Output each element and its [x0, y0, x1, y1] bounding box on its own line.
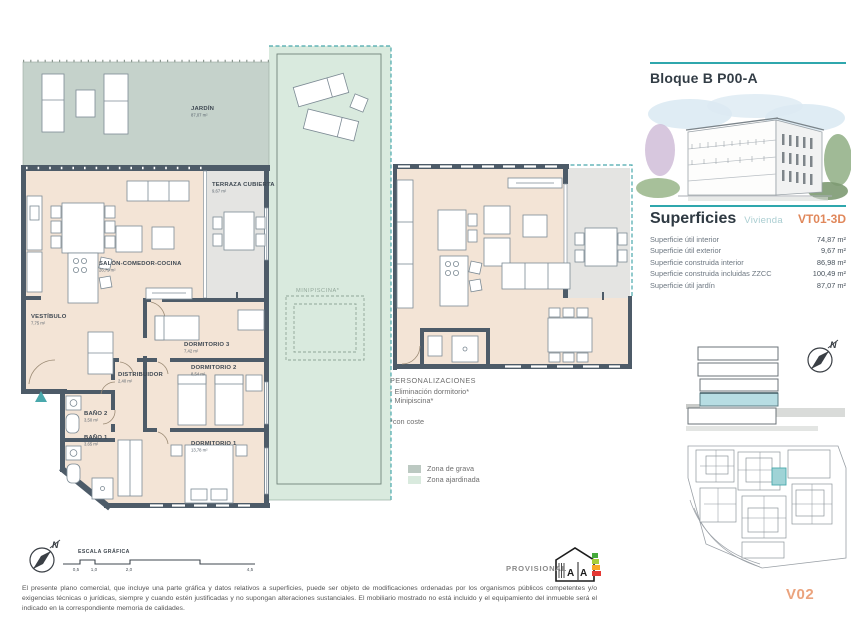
svg-text:8,54 m²: 8,54 m² [191, 372, 206, 377]
svg-text:7,75 m²: 7,75 m² [31, 321, 46, 326]
svg-text:1,0: 1,0 [91, 567, 98, 572]
site-plan [688, 446, 846, 568]
svg-text:2,40 m²: 2,40 m² [118, 379, 133, 384]
scale-bar: ESCALA GRÁFICA 0,5 1,0 2,0 4,5 [63, 548, 255, 572]
svg-text:7,42 m²: 7,42 m² [184, 349, 199, 354]
site-highlighted-unit [772, 468, 786, 485]
label-terraza: TERRAZA CUBIERTA [212, 182, 275, 188]
svg-text:A: A [580, 568, 587, 579]
personalizaciones-note: *con coste [390, 417, 476, 426]
svg-text:A: A [567, 568, 574, 579]
superficies-subtitle: Vivienda [744, 215, 783, 226]
legend-item: Zona de grava [408, 463, 480, 474]
svg-text:13,78 m²: 13,78 m² [191, 448, 208, 453]
label-bano1: BAÑO 1 [84, 434, 108, 441]
svg-text:2,0: 2,0 [126, 567, 133, 572]
label-jardin: JARDÍN [191, 104, 214, 112]
panel-mid-rule [650, 205, 846, 207]
scale-title: ESCALA GRÁFICA [78, 548, 130, 555]
label-dormitorio2: DORMITORIO 2 [191, 365, 237, 371]
svg-text:9,67 m²: 9,67 m² [212, 189, 227, 194]
label-minipiscina: MINIPISCINA* [296, 288, 340, 294]
table-row: Superficie construida interior86,98 m² [650, 257, 846, 268]
compass-panel: N [808, 340, 838, 372]
compass-main: N [30, 540, 60, 572]
legend-item: Zona ajardinada [408, 474, 480, 485]
building-illustration [636, 94, 851, 201]
label-vestibulo: VESTÍBULO [31, 312, 67, 320]
personalizaciones-block: PERSONALIZACIONES - Eliminación dormitor… [390, 376, 476, 426]
label-bano2: BAÑO 2 [84, 410, 108, 417]
superficies-title: Superficies [650, 210, 736, 228]
main-floor-plan: JARDÍN 87,07 m² TERRAZA CUBIERTA 9,67 m²… [21, 46, 391, 508]
personalizaciones-item: - Eliminación dormitorio* [390, 387, 476, 396]
superficies-table: Superficie útil interior74,87 m² Superfi… [650, 234, 846, 291]
variant-floor-plan [393, 164, 632, 370]
label-dormitorio3: DORMITORIO 3 [184, 342, 230, 348]
block-title: Bloque B P00-A [650, 70, 758, 86]
panel-top-rule [650, 62, 846, 64]
label-dormitorio1: DORMITORIO 1 [191, 441, 237, 447]
svg-text:0,5: 0,5 [73, 567, 80, 572]
personalizaciones-item: - Minipiscina* [390, 396, 476, 405]
garden-swatch [408, 476, 421, 484]
svg-text:3,50 m²: 3,50 m² [84, 418, 99, 423]
plan-drawing-layer: JARDÍN 87,07 m² TERRAZA CUBIERTA 9,67 m²… [0, 0, 851, 625]
legal-disclaimer: El presente plano comercial, que incluye… [22, 584, 597, 614]
personalizaciones-title: PERSONALIZACIONES [390, 376, 476, 385]
table-row: Superficie construida incluidas ZZCC100,… [650, 268, 846, 279]
floor-plan-sheet: JARDÍN 87,07 m² TERRAZA CUBIERTA 9,67 m²… [0, 0, 851, 625]
zone-legend: Zona de grava Zona ajardinada [408, 463, 480, 485]
svg-text:4,5: 4,5 [247, 567, 254, 572]
svg-text:87,07 m²: 87,07 m² [191, 113, 208, 118]
unit-code: VT01-3D [798, 212, 846, 226]
superficies-header: Superficies Vivienda VT01-3D [650, 210, 846, 228]
gravel-swatch [408, 465, 421, 473]
version-label: V02 [786, 586, 814, 603]
table-row: Superficie útil interior74,87 m² [650, 234, 846, 245]
provisional-label: PROVISIONAL [506, 564, 567, 573]
label-salon: SALÓN-COMEDOR-COCINA [99, 259, 182, 267]
svg-text:3,65 m²: 3,65 m² [84, 442, 99, 447]
svg-text:26,75 m²: 26,75 m² [99, 268, 116, 273]
table-row: Superficie útil jardín87,07 m² [650, 280, 846, 291]
label-distribuidor: DISTRIBUIDOR [118, 372, 163, 378]
table-row: Superficie útil exterior9,67 m² [650, 245, 846, 256]
